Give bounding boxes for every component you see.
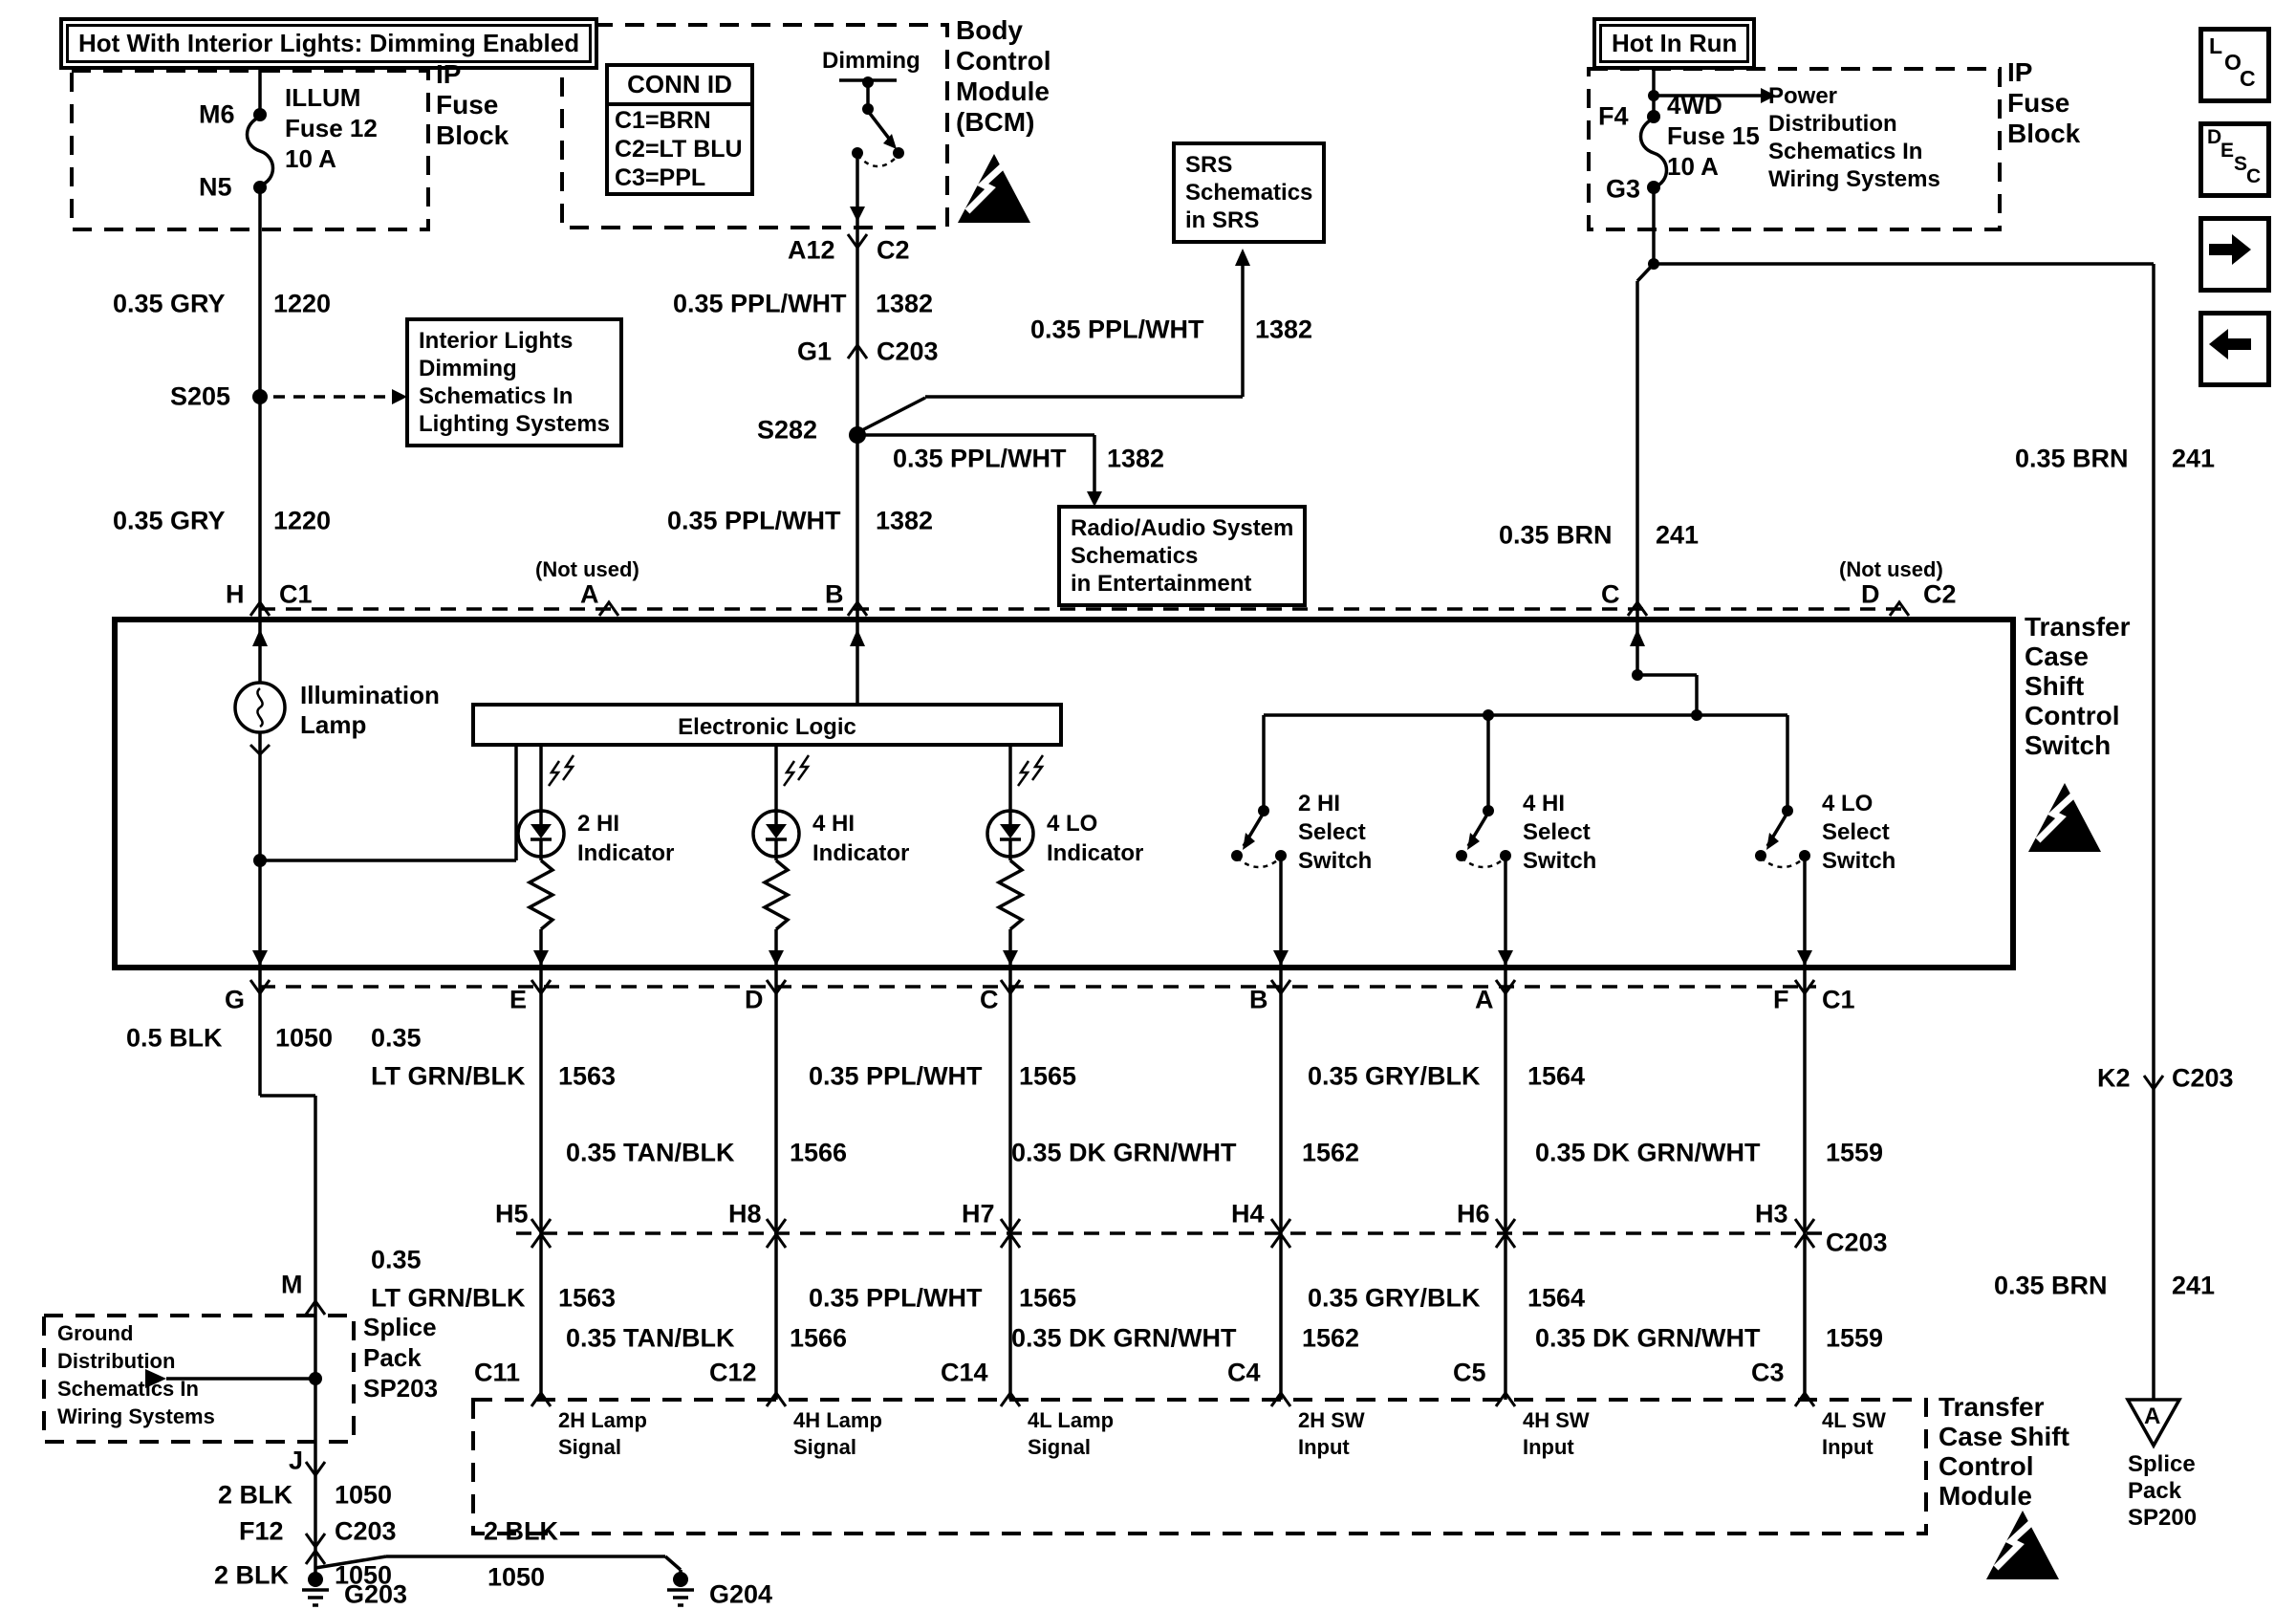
select-switch-4lo-label: 4 LOSelectSwitch [1822, 790, 1895, 876]
resistor-icon [999, 860, 1022, 929]
module-fn-2h-lamp: 2H LampSignal [558, 1407, 647, 1461]
pin-d-bot: D [745, 986, 764, 1015]
wire-dkgrn-1559b-num: 1559 [1826, 1324, 1883, 1354]
wire-2blk-1050a-num: 1050 [335, 1481, 392, 1511]
ip-fuse-block-label-left: IPFuseBlock [436, 59, 509, 151]
select-switch-4hi-label: 4 HISelectSwitch [1523, 790, 1596, 876]
wire-ppl-1565a-num: 1565 [1019, 1062, 1076, 1092]
pin-d-top: D [1861, 580, 1880, 610]
loc-letter: C [2240, 66, 2256, 92]
wire-dkgrn-1559b-name: 0.35 DK GRN/WHT [1535, 1324, 1761, 1354]
wire-2blk-1050b-name: 2 BLK [214, 1561, 289, 1591]
ref-interior-lights-dimming[interactable]: Interior LightsDimmingSchematics InLight… [405, 317, 623, 447]
wire-tan-1566a-name: 0.35 TAN/BLK [566, 1139, 735, 1168]
wire-ppl-1382a-num: 1382 [876, 290, 933, 319]
pin-e-bot: E [509, 986, 527, 1015]
wire-dkgrn-1559a-name: 0.35 DK GRN/WHT [1535, 1139, 1761, 1168]
wire-dkgrn-1562a-num: 1562 [1302, 1139, 1359, 1168]
electronic-logic-label: Electronic Logic [473, 713, 1061, 741]
pin-g-bot: G [225, 986, 245, 1015]
next-page-button[interactable] [2199, 216, 2271, 293]
wire-2blk-1050a-name: 2 BLK [218, 1481, 292, 1511]
esd-icon-module [1986, 1511, 2059, 1579]
pin-f-bot: F [1773, 986, 1789, 1015]
resistor-icon [530, 860, 552, 929]
splice-s205: S205 [170, 382, 230, 412]
pin-c5: C5 [1453, 1359, 1486, 1388]
illumination-lamp-icon [235, 683, 285, 732]
pin-g3: G3 [1606, 175, 1640, 205]
arrow-right-icon [2209, 234, 2251, 265]
conn-id-row: C1=BRN [609, 106, 750, 135]
control-module-label: TransferCase ShiftControlModule [1939, 1392, 2069, 1511]
conn-id-row: C2=LT BLU [609, 135, 750, 163]
module-fn-4h-sw: 4H SWInput [1523, 1407, 1590, 1461]
loc-letter: L [2209, 33, 2222, 59]
wire-blk-1050-num: 1050 [275, 1024, 333, 1054]
conn-h3: H3 [1755, 1200, 1788, 1229]
pin-c4: C4 [1227, 1359, 1261, 1388]
loc-button[interactable]: L O C [2199, 27, 2271, 103]
wire-ltgrn-1563a-sz: 0.35 [371, 1024, 422, 1054]
wire-ltgrn-1563b-sz: 0.35 [371, 1246, 422, 1275]
indicator-4lo-label: 4 LOIndicator [1047, 809, 1143, 868]
wire-dkgrn-1562b-num: 1562 [1302, 1324, 1359, 1354]
pin-m6: M6 [199, 100, 235, 130]
wire-gry-1564a-name: 0.35 GRY/BLK [1308, 1062, 1481, 1092]
wire-brn-241-right1-num: 241 [2172, 445, 2215, 474]
ground-g204-icon [667, 1590, 694, 1605]
pin-g1: G1 [797, 337, 832, 367]
indicator-2hi-label: 2 HIIndicator [577, 809, 674, 868]
pin-c3: C3 [1751, 1359, 1785, 1388]
desc-letter: C [2246, 165, 2261, 188]
note-not-used-d: (Not used) [1839, 557, 1943, 582]
wire-2blk-1050c-num: 1050 [487, 1563, 545, 1593]
fuse-12-label: ILLUMFuse 1210 A [285, 82, 378, 174]
pin-c-top: C [1601, 580, 1620, 610]
shift-switch-box [115, 620, 2013, 968]
conn-h4: H4 [1231, 1200, 1265, 1229]
wire-gry-1220a-num: 1220 [273, 290, 331, 319]
wire-ltgrn-1563a-name: LT GRN/BLK [371, 1062, 525, 1092]
module-fn-4l-lamp: 4L LampSignal [1028, 1407, 1114, 1461]
conn-c203-k2: C203 [2172, 1064, 2234, 1094]
conn-c2-a12: C2 [877, 236, 910, 266]
wire-tan-1566b-name: 0.35 TAN/BLK [566, 1324, 735, 1354]
arrow-left-icon [2209, 329, 2251, 359]
wire-ltgrn-1563b-name: LT GRN/BLK [371, 1284, 525, 1314]
wire-ppl-1382-radio-num: 1382 [1107, 445, 1164, 474]
desc-letter: D [2207, 126, 2221, 149]
ref-srs-schematics[interactable]: SRSSchematicsin SRS [1172, 141, 1326, 244]
conn-c203-h3: C203 [1826, 1229, 1888, 1258]
ip-fuse-block-label-right: IPFuseBlock [2007, 57, 2080, 149]
bcm-label: BodyControlModule(BCM) [956, 15, 1051, 138]
note-not-used-a: (Not used) [535, 557, 639, 582]
conn-id-row: C3=PPL [609, 163, 750, 192]
pin-f12: F12 [239, 1517, 284, 1547]
wire-ppl-1382-radio-name: 0.35 PPL/WHT [893, 445, 1067, 474]
illumination-lamp-label: IlluminationLamp [300, 681, 440, 740]
pin-a12: A12 [788, 236, 835, 266]
wire-dkgrn-1559a-num: 1559 [1826, 1139, 1883, 1168]
conn-id-header: CONN ID [609, 67, 750, 106]
wire-gry-1564b-num: 1564 [1527, 1284, 1585, 1314]
wire-ppl-1382b-num: 1382 [876, 507, 933, 536]
conn-c1-top: C1 [279, 580, 313, 610]
pin-c12: C12 [709, 1359, 757, 1388]
wire-dkgrn-1562b-name: 0.35 DK GRN/WHT [1011, 1324, 1237, 1354]
conn-c203-g1: C203 [877, 337, 939, 367]
pin-f4: F4 [1598, 102, 1629, 132]
conn-k2: K2 [2097, 1064, 2131, 1094]
conn-h7: H7 [962, 1200, 995, 1229]
pin-n5: N5 [199, 173, 232, 203]
splice-s282: S282 [757, 416, 817, 446]
wire-ppl-1382-srs-num: 1382 [1255, 315, 1312, 345]
wire-ppl-1382a-name: 0.35 PPL/WHT [673, 290, 847, 319]
ground-g203-icon [302, 1590, 329, 1605]
wire-ppl-1565a-name: 0.35 PPL/WHT [809, 1062, 983, 1092]
pin-a-top: A [580, 580, 599, 610]
ref-ground-distribution[interactable]: GroundDistributionSchematics InWiring Sy… [57, 1319, 215, 1430]
pin-b-bot: B [1249, 986, 1268, 1015]
wire-ppl-1382b-name: 0.35 PPL/WHT [667, 507, 841, 536]
pin-a-bot: A [1475, 986, 1494, 1015]
wire-brn-241-c-name: 0.35 BRN [1499, 521, 1613, 551]
ref-power-distribution[interactable]: PowerDistributionSchematics InWiring Sys… [1768, 82, 1940, 193]
desc-letter: S [2234, 153, 2247, 176]
pin-h: H [226, 580, 245, 610]
wire-gry-1564b-name: 0.35 GRY/BLK [1308, 1284, 1481, 1314]
conn-h6: H6 [1457, 1200, 1490, 1229]
esd-icon-switch [2028, 783, 2101, 852]
module-fn-2h-sw: 2H SWInput [1298, 1407, 1365, 1461]
desc-button[interactable]: D E S C [2199, 121, 2271, 198]
banner-hot-in-run: Hot In Run [1592, 17, 1756, 70]
module-fn-4l-sw: 4L SWInput [1822, 1407, 1886, 1461]
shift-switch-label: TransferCaseShiftControlSwitch [2025, 612, 2131, 760]
wire-gry-1220b-name: 0.35 GRY [113, 507, 226, 536]
sp200-triangle-letter: A [2144, 1403, 2160, 1430]
wire-brn-241-right2-num: 241 [2172, 1272, 2215, 1301]
control-module-box [473, 1400, 1926, 1534]
conn-c2-d: C2 [1923, 580, 1957, 610]
wire-ltgrn-1563b-num: 1563 [558, 1284, 616, 1314]
wire-ppl-1565b-name: 0.35 PPL/WHT [809, 1284, 983, 1314]
label-dimming: Dimming [822, 48, 921, 75]
sp203-label: SplicePackSP203 [363, 1312, 438, 1403]
pin-b-top: B [825, 580, 844, 610]
desc-letter: E [2220, 140, 2234, 163]
conn-c203-f12: C203 [335, 1517, 397, 1547]
wire-dkgrn-1562a-name: 0.35 DK GRN/WHT [1011, 1139, 1237, 1168]
wire-brn-241-right2-name: 0.35 BRN [1994, 1272, 2108, 1301]
solid-boxes [115, 620, 2013, 968]
wire-gry-1220a-name: 0.35 GRY [113, 290, 226, 319]
pin-c14: C14 [941, 1359, 988, 1388]
select-switch-2hi-label: 2 HISelectSwitch [1298, 790, 1372, 876]
wire-2blk-1050c-name: 2 BLK [484, 1517, 558, 1547]
fuse-15-icon [1641, 119, 1667, 187]
wire-ltgrn-1563a-num: 1563 [558, 1062, 616, 1092]
schematic-page: { "banners": {"left":"Hot With Interior … [0, 0, 2296, 1610]
conn-id-table: CONN ID C1=BRN C2=LT BLU C3=PPL [605, 63, 754, 196]
indicator-4hi-label: 4 HIIndicator [812, 809, 909, 868]
ground-g204-label: G204 [709, 1580, 772, 1610]
conn-c1-bot: C1 [1822, 986, 1855, 1015]
banner-hot-with-interior-lights: Hot With Interior Lights: Dimming Enable… [59, 17, 598, 70]
wire-brn-241-c-num: 241 [1656, 521, 1699, 551]
wire-ppl-1382-srs-name: 0.35 PPL/WHT [1030, 315, 1204, 345]
pin-j: J [289, 1447, 303, 1476]
sp200-label: SplicePackSP200 [2128, 1451, 2197, 1532]
conn-h5: H5 [495, 1200, 529, 1229]
wire-brn-241-right1-name: 0.35 BRN [2015, 445, 2129, 474]
wire-tan-1566a-num: 1566 [790, 1139, 847, 1168]
module-fn-4h-lamp: 4H LampSignal [793, 1407, 882, 1461]
fuse-15-label: 4WDFuse 1510 A [1667, 90, 1760, 182]
pin-c11: C11 [474, 1359, 520, 1388]
esd-icon-bcm [958, 154, 1030, 223]
schematic-drawing [0, 0, 2296, 1610]
wire-gry-1220b-num: 1220 [273, 507, 331, 536]
wire-gry-1564a-num: 1564 [1527, 1062, 1585, 1092]
prev-page-button[interactable] [2199, 311, 2271, 387]
resistor-icon [765, 860, 788, 929]
wire-tan-1566b-num: 1566 [790, 1324, 847, 1354]
pin-c-bot: C [980, 986, 999, 1015]
pin-m: M [281, 1271, 303, 1300]
conn-h8: H8 [728, 1200, 762, 1229]
ref-radio-audio-schematics[interactable]: Radio/Audio SystemSchematicsin Entertain… [1057, 505, 1307, 607]
lightning-icons [549, 755, 1043, 786]
wire-blk-1050-name: 0.5 BLK [126, 1024, 223, 1054]
ground-g203-label: G203 [344, 1580, 407, 1610]
wire-ppl-1565b-num: 1565 [1019, 1284, 1076, 1314]
fuse-12-icon [248, 117, 273, 185]
